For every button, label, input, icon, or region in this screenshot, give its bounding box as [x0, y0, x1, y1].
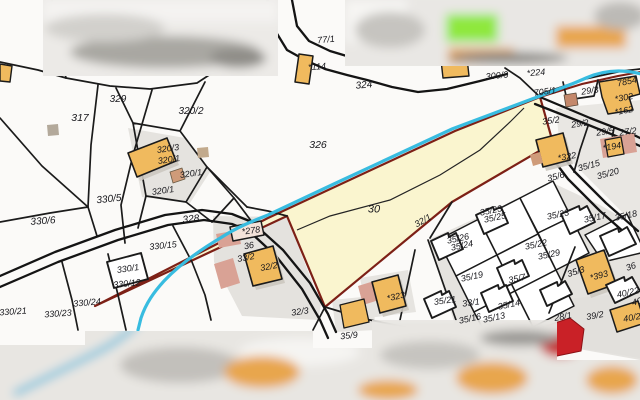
blur-region-top-left	[33, 0, 288, 86]
blurred-green-area	[446, 14, 498, 42]
building	[0, 64, 12, 82]
building	[564, 93, 578, 107]
building	[197, 147, 209, 158]
building	[47, 124, 59, 136]
building-194	[605, 137, 624, 157]
cadastral-map-viewport[interactable]: 77/1*114324329317320/2326320/3320/1320/1…	[0, 0, 640, 400]
building-359	[340, 299, 369, 328]
cadastral-map	[0, 0, 640, 400]
building-114	[295, 54, 313, 84]
blur-region-top-right	[335, 0, 640, 76]
